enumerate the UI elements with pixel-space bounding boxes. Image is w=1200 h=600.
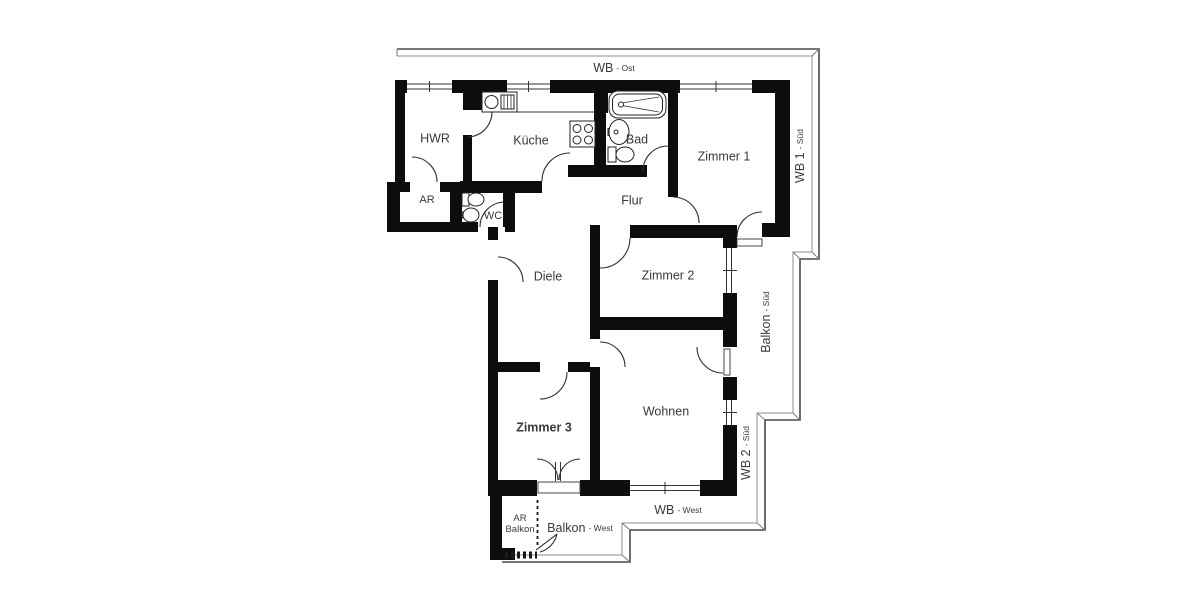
room-label-wc: WC xyxy=(484,210,502,222)
room-label-diele: Diele xyxy=(534,269,563,283)
room-label-bad: Bad xyxy=(626,132,648,146)
french-door-left-arc xyxy=(537,459,558,480)
room-label-flur: Flur xyxy=(621,193,643,207)
label-wb-west: WB- West xyxy=(654,503,702,517)
zimmer2-door-arc xyxy=(600,238,630,268)
label-wb1-sued: WB 1- Süd xyxy=(793,129,807,183)
wohnen-door-arc xyxy=(600,342,625,367)
kueche-door-arc xyxy=(542,153,570,181)
stove-icon xyxy=(570,121,595,147)
ar-door-arc xyxy=(412,157,437,182)
room-label-ar: AR xyxy=(419,194,434,206)
label-balkon-west: Balkon- West xyxy=(547,521,613,535)
label-wb-ost: WB- Ost xyxy=(593,61,635,75)
room-label-zimmer3: Zimmer 3 xyxy=(516,420,572,434)
french-door-right-arc xyxy=(559,459,580,480)
bathtub-icon xyxy=(609,91,666,118)
label-ar-balkon: ARBalkon xyxy=(505,513,534,535)
hwr-kueche-door-arc xyxy=(467,112,492,137)
floor-plan-drawing: HWR Küche Bad Zimmer 1 AR WC Flur Diele … xyxy=(0,0,1200,600)
room-label-hwr: HWR xyxy=(420,131,450,145)
floor-plan-page: HWR Küche Bad Zimmer 1 AR WC Flur Diele … xyxy=(0,0,1200,600)
zimmer1-balcony-door-arc xyxy=(737,212,762,237)
wohnen-balcony-door-arc xyxy=(697,347,723,373)
zimmer3-door-arc xyxy=(540,372,567,399)
wc-toilet-icon xyxy=(462,193,484,206)
entrance-door-arc xyxy=(498,257,523,282)
room-label-kueche: Küche xyxy=(513,133,548,147)
kitchen-sink-icon xyxy=(482,92,517,112)
room-label-wohnen: Wohnen xyxy=(643,404,689,418)
label-wb2-sued: WB 2- Süd xyxy=(739,426,753,480)
label-balkon-sued: Balkon- Süd xyxy=(759,291,773,353)
wc-washbasin-icon xyxy=(462,208,479,222)
ar-balkon-door-arc xyxy=(540,534,557,552)
toilet-icon xyxy=(608,147,634,162)
zimmer1-door-arc xyxy=(673,197,699,223)
room-label-zimmer1: Zimmer 1 xyxy=(698,149,751,163)
room-label-zimmer2: Zimmer 2 xyxy=(642,268,695,282)
